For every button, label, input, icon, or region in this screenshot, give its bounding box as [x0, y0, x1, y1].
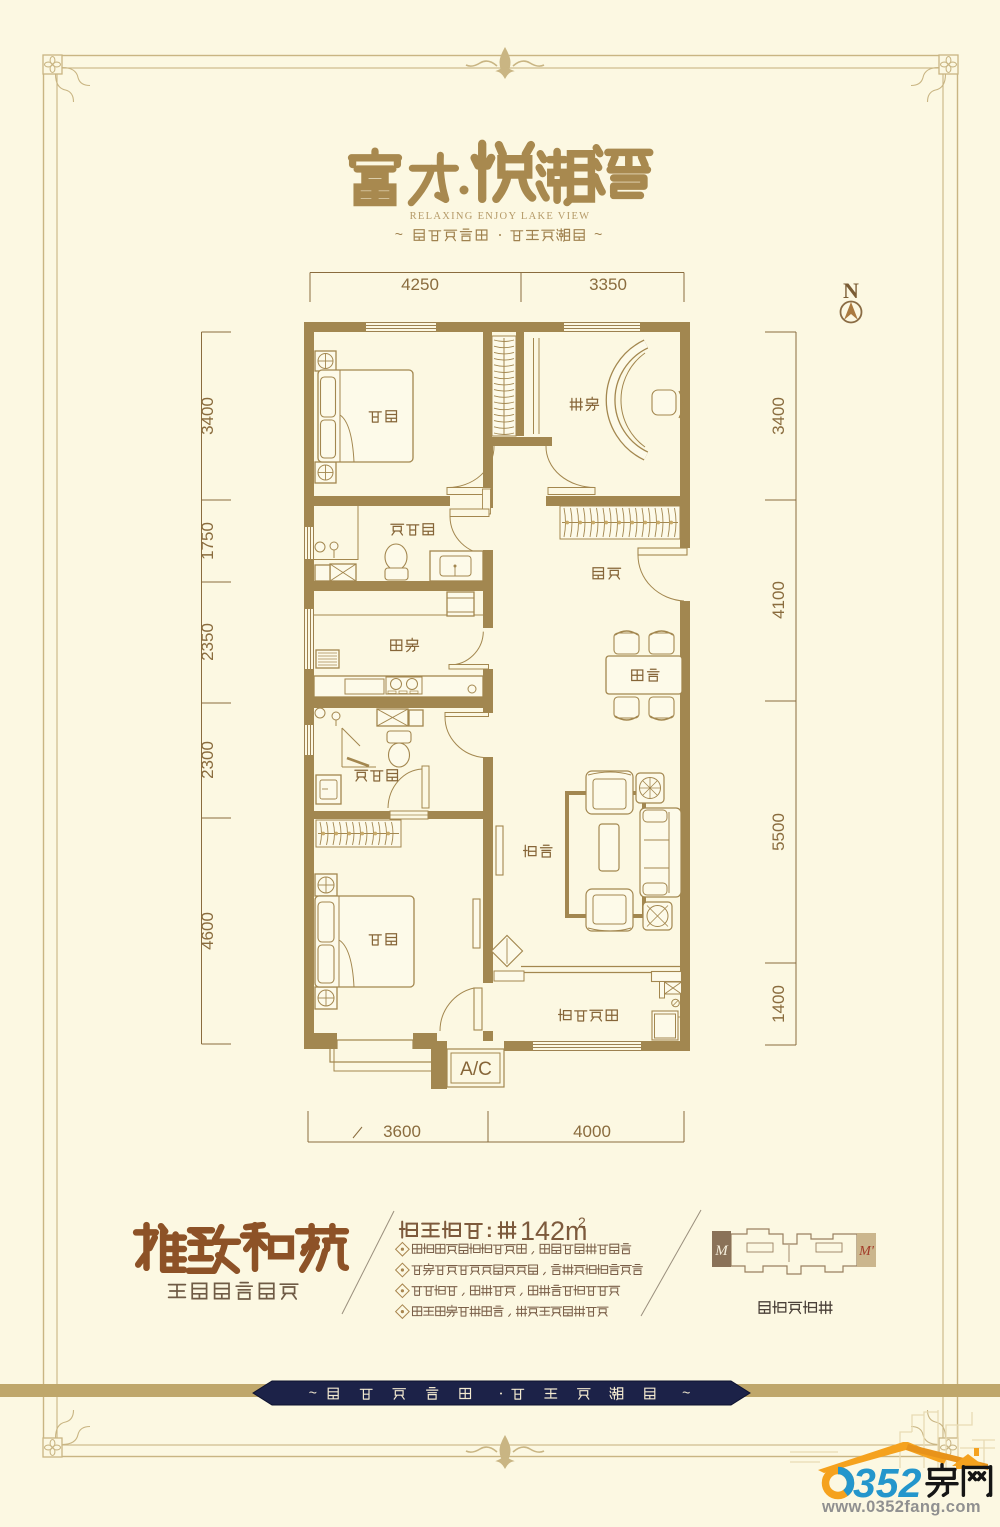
- svg-text:2350: 2350: [198, 623, 217, 661]
- svg-text:www.0352fang.com: www.0352fang.com: [821, 1498, 981, 1516]
- svg-text:M': M': [858, 1244, 875, 1259]
- svg-text:~: ~: [594, 226, 602, 242]
- svg-text:1750: 1750: [198, 522, 217, 560]
- svg-text:~: ~: [309, 1384, 317, 1400]
- svg-text::: :: [486, 1220, 493, 1242]
- svg-text:RELAXING ENJOY LAKE VIEW: RELAXING ENJOY LAKE VIEW: [410, 211, 591, 222]
- svg-text:4000: 4000: [573, 1122, 611, 1141]
- svg-text:N: N: [843, 278, 859, 303]
- svg-text:4250: 4250: [401, 275, 439, 294]
- svg-text:~: ~: [682, 1384, 690, 1400]
- svg-text:2: 2: [578, 1214, 586, 1230]
- svg-text:A/C: A/C: [460, 1059, 492, 1080]
- svg-text:5500: 5500: [769, 813, 788, 851]
- svg-text:3600: 3600: [383, 1122, 421, 1141]
- svg-text:1400: 1400: [769, 985, 788, 1023]
- svg-text:3400: 3400: [198, 397, 217, 435]
- svg-text:M: M: [714, 1243, 729, 1259]
- svg-text:2300: 2300: [198, 741, 217, 779]
- svg-text:3350: 3350: [589, 275, 627, 294]
- svg-text:4100: 4100: [769, 581, 788, 619]
- svg-text:4600: 4600: [198, 912, 217, 950]
- svg-text:~: ~: [395, 226, 403, 242]
- svg-text:3400: 3400: [769, 397, 788, 435]
